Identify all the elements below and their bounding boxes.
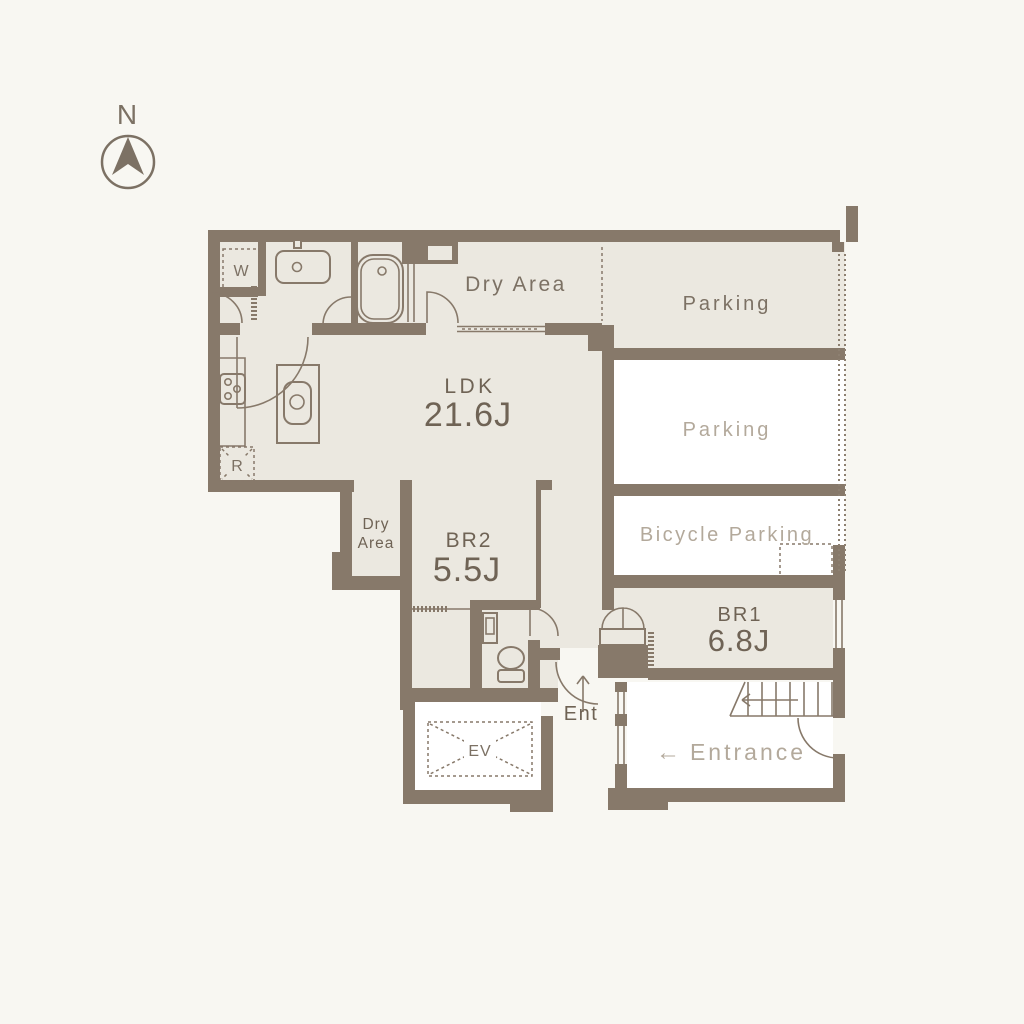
washbasin — [276, 251, 330, 283]
wall-ldk-bottom — [208, 480, 354, 492]
parking-lower-label: Parking — [683, 419, 772, 441]
wall-ldk-right — [602, 325, 614, 575]
dry-area-small-label-1: Dry — [362, 516, 389, 533]
wall-parking1-bottom — [602, 348, 845, 360]
elevator-label: EV — [468, 743, 491, 760]
bathtub — [357, 255, 403, 323]
wall-central-vertical — [400, 480, 412, 710]
parking-upper-label: Parking — [683, 293, 772, 315]
entrance-arrow-icon: ← — [656, 739, 680, 766]
wall-utility-bottom-2 — [312, 323, 426, 335]
wall-top — [208, 230, 840, 242]
ent-label: Ent — [564, 703, 599, 725]
wall-br1-right-a — [833, 575, 845, 600]
wall-parking2-bottom — [602, 484, 845, 496]
wall-closet-toilet-divider — [470, 600, 482, 692]
wall-drysmall-step — [332, 552, 344, 578]
wall-br1-bottom — [648, 668, 833, 680]
dry-area-top-label: Dry Area — [465, 273, 567, 296]
wall-top-right-stub — [846, 206, 858, 242]
wall-entrance-bottom-step — [608, 788, 668, 810]
floor-plan: N — [0, 0, 1024, 1024]
entrance-label: Entrance — [690, 739, 806, 765]
wall-left — [208, 230, 220, 492]
wall-genkan-block — [598, 645, 648, 678]
genkan-step — [600, 629, 645, 645]
br2-size-label: 5.5J — [433, 551, 501, 589]
wall-utility-bottom-1 — [220, 323, 240, 335]
washer-label: W — [233, 263, 249, 280]
ldk-name-label: LDK — [444, 375, 495, 398]
br1-size-label: 6.8J — [708, 623, 771, 658]
basin-tap-icon — [294, 240, 301, 248]
wall-entrance-left-a — [615, 682, 627, 692]
wall-entrance-left-c — [615, 764, 627, 790]
wall-right-bottom — [833, 754, 845, 802]
island-sink — [284, 382, 311, 424]
wall-br1-right-b — [833, 648, 845, 718]
ldk-size-label: 21.6J — [424, 396, 512, 434]
toilet-bowl-icon — [498, 647, 524, 669]
refrigerator-label: R — [231, 458, 243, 475]
stove-icon — [220, 374, 245, 404]
bicycle-parking-label: Bicycle Parking — [640, 524, 814, 546]
dry-area-small-label-2: Area — [358, 535, 395, 552]
wall-vestibule-left — [602, 588, 614, 610]
bath-niche — [428, 246, 452, 260]
compass-n-label: N — [117, 99, 137, 130]
br2-name-label: BR2 — [446, 529, 493, 552]
wall-entrance-left-b — [615, 714, 627, 726]
wall-ev-bottom-step — [510, 790, 553, 812]
wall-ev-right — [541, 716, 553, 790]
wall-ev-left — [403, 702, 415, 790]
wall-br2-right — [536, 488, 541, 608]
toilet-tank-icon — [498, 670, 524, 682]
wall-bicycle-bottom — [602, 575, 845, 588]
wall-toilet-right — [528, 640, 540, 692]
wall-top-right-nub — [832, 242, 844, 252]
